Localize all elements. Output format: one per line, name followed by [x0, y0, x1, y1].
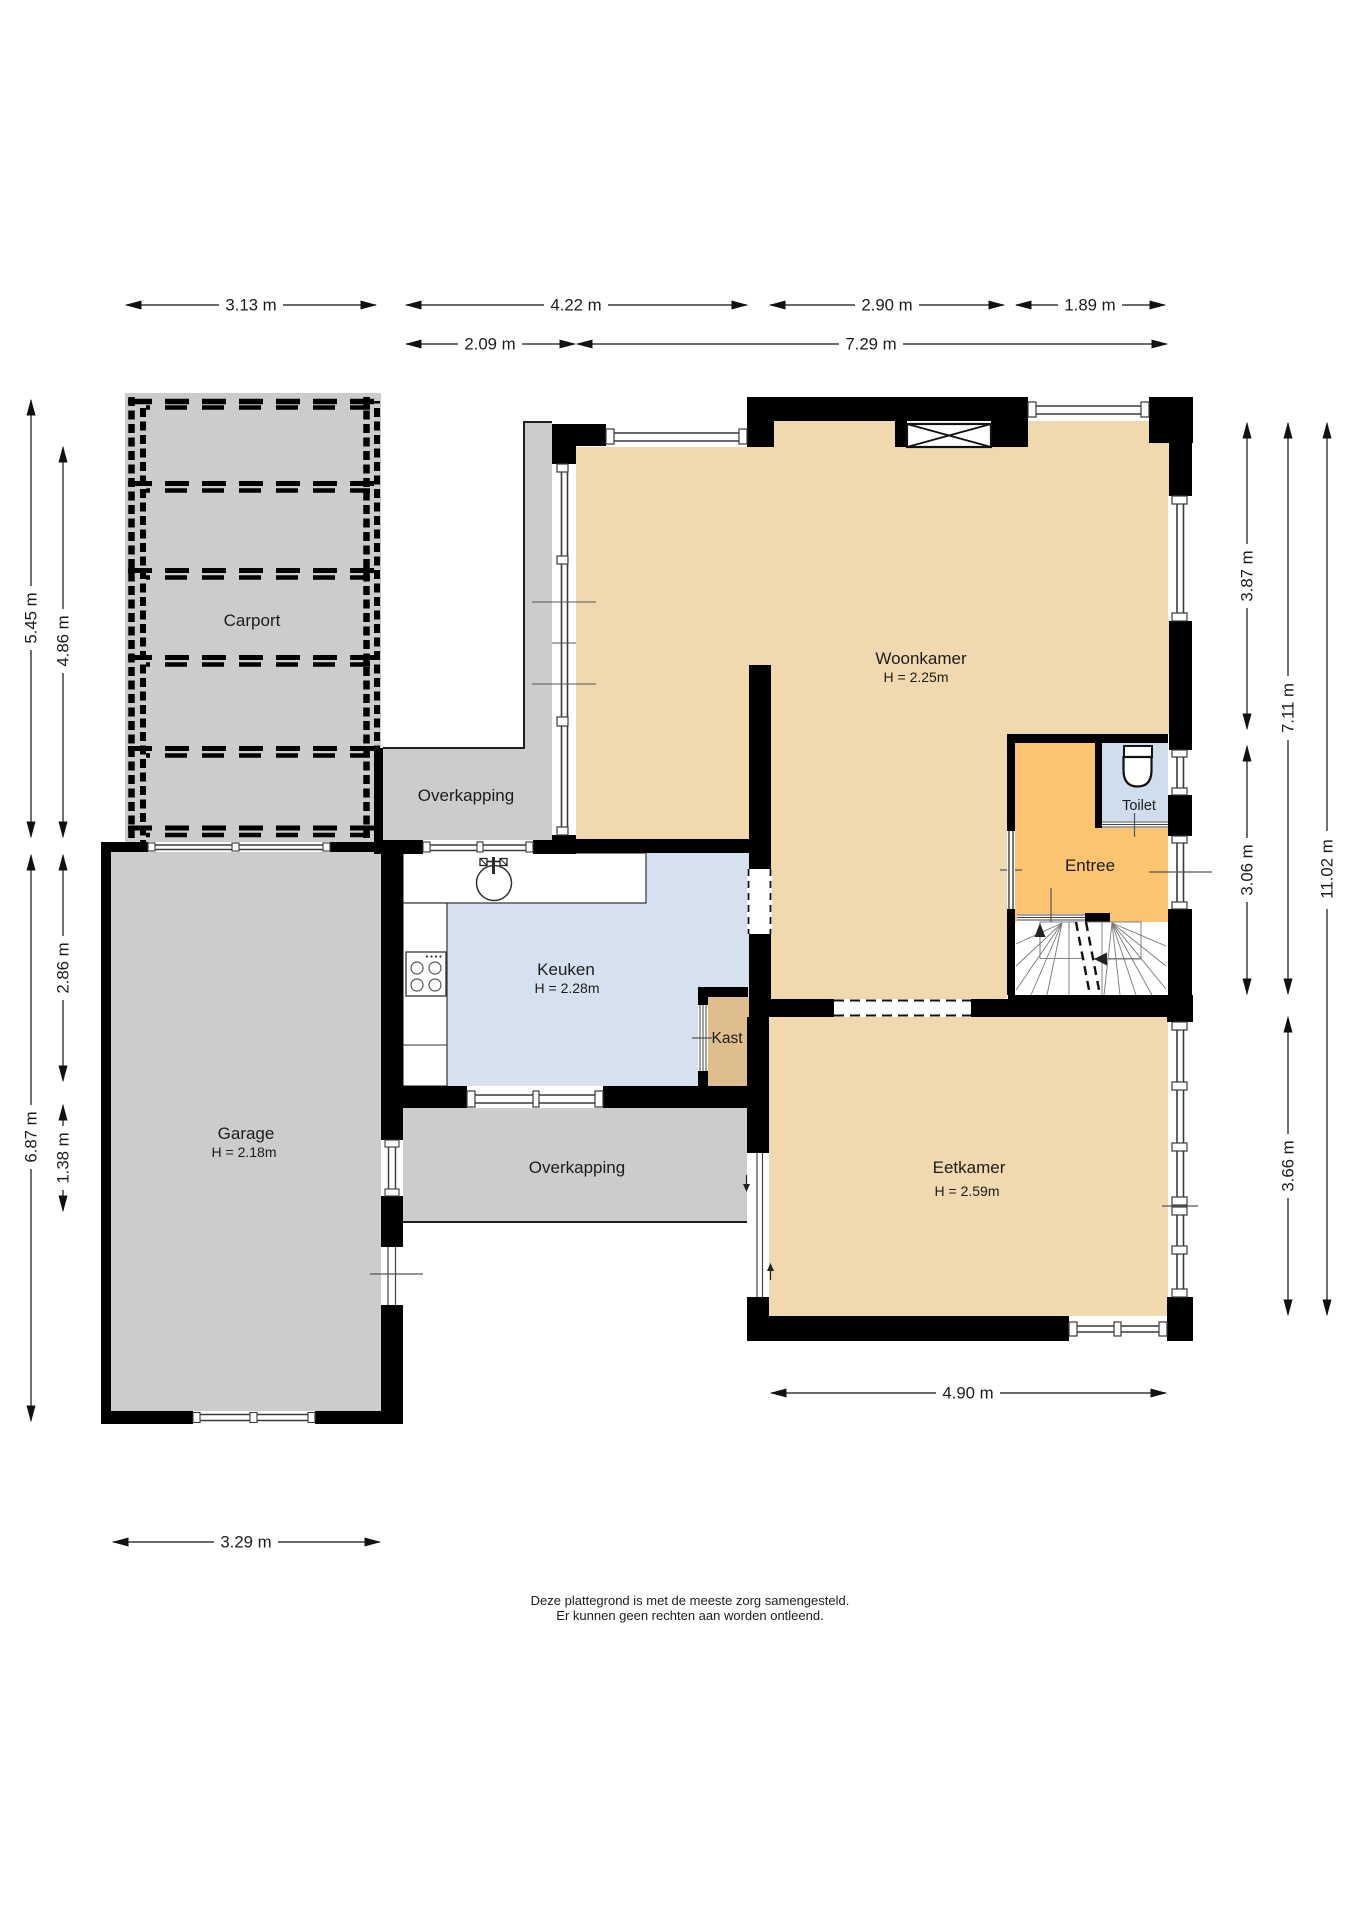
svg-text:3.13 m: 3.13 m [225, 296, 276, 315]
svg-text:Garage: Garage [218, 1124, 275, 1143]
svg-text:H = 2.28m: H = 2.28m [535, 980, 600, 996]
svg-text:Eetkamer: Eetkamer [933, 1158, 1006, 1177]
svg-text:4.22 m: 4.22 m [550, 296, 601, 315]
svg-text:3.06 m: 3.06 m [1238, 844, 1257, 895]
svg-text:Kast: Kast [711, 1030, 743, 1047]
svg-text:3.66 m: 3.66 m [1279, 1140, 1298, 1191]
svg-text:Keuken: Keuken [537, 960, 595, 979]
svg-text:7.29 m: 7.29 m [845, 335, 896, 354]
svg-text:H = 2.59m: H = 2.59m [935, 1183, 1000, 1199]
svg-text:H = 2.18m: H = 2.18m [212, 1144, 277, 1160]
svg-text:11.02 m: 11.02 m [1318, 839, 1337, 898]
svg-text:Woonkamer: Woonkamer [875, 649, 967, 668]
svg-text:2.09 m: 2.09 m [464, 335, 515, 354]
svg-text:Overkapping: Overkapping [529, 1158, 625, 1177]
svg-text:H = 2.25m: H = 2.25m [884, 669, 949, 685]
svg-text:Entree: Entree [1065, 856, 1115, 875]
svg-text:2.86 m: 2.86 m [54, 942, 73, 993]
svg-text:7.11 m: 7.11 m [1279, 683, 1298, 733]
svg-text:2.90 m: 2.90 m [861, 296, 912, 315]
svg-text:3.29 m: 3.29 m [220, 1533, 271, 1552]
svg-text:3.87 m: 3.87 m [1238, 550, 1257, 601]
svg-text:Er kunnen geen rechten aan wor: Er kunnen geen rechten aan worden ontlee… [556, 1608, 823, 1623]
svg-text:1.38 m: 1.38 m [54, 1132, 73, 1183]
svg-text:Carport: Carport [224, 611, 281, 630]
svg-text:5.45 m: 5.45 m [22, 592, 41, 643]
svg-text:4.86 m: 4.86 m [54, 615, 73, 666]
svg-text:Toilet: Toilet [1122, 798, 1156, 814]
svg-text:Deze plattegrond is met de mee: Deze plattegrond is met de meeste zorg s… [531, 1593, 850, 1608]
svg-text:Overkapping: Overkapping [418, 786, 514, 805]
svg-text:1.89 m: 1.89 m [1064, 296, 1115, 315]
svg-text:4.90 m: 4.90 m [942, 1384, 993, 1403]
svg-text:6.87 m: 6.87 m [22, 1111, 41, 1162]
